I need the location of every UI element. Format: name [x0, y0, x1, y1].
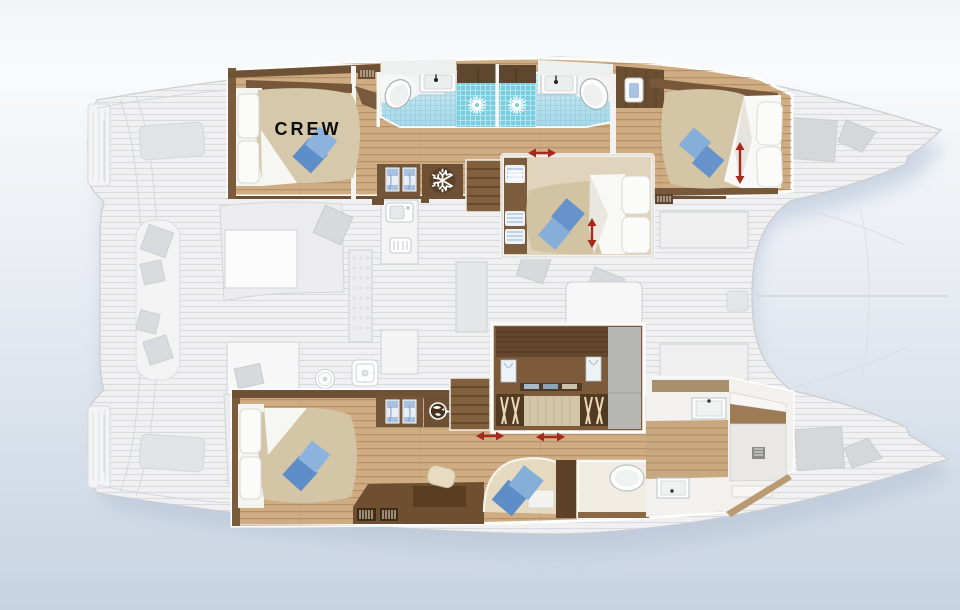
svg-text:CREW: CREW	[275, 119, 342, 139]
